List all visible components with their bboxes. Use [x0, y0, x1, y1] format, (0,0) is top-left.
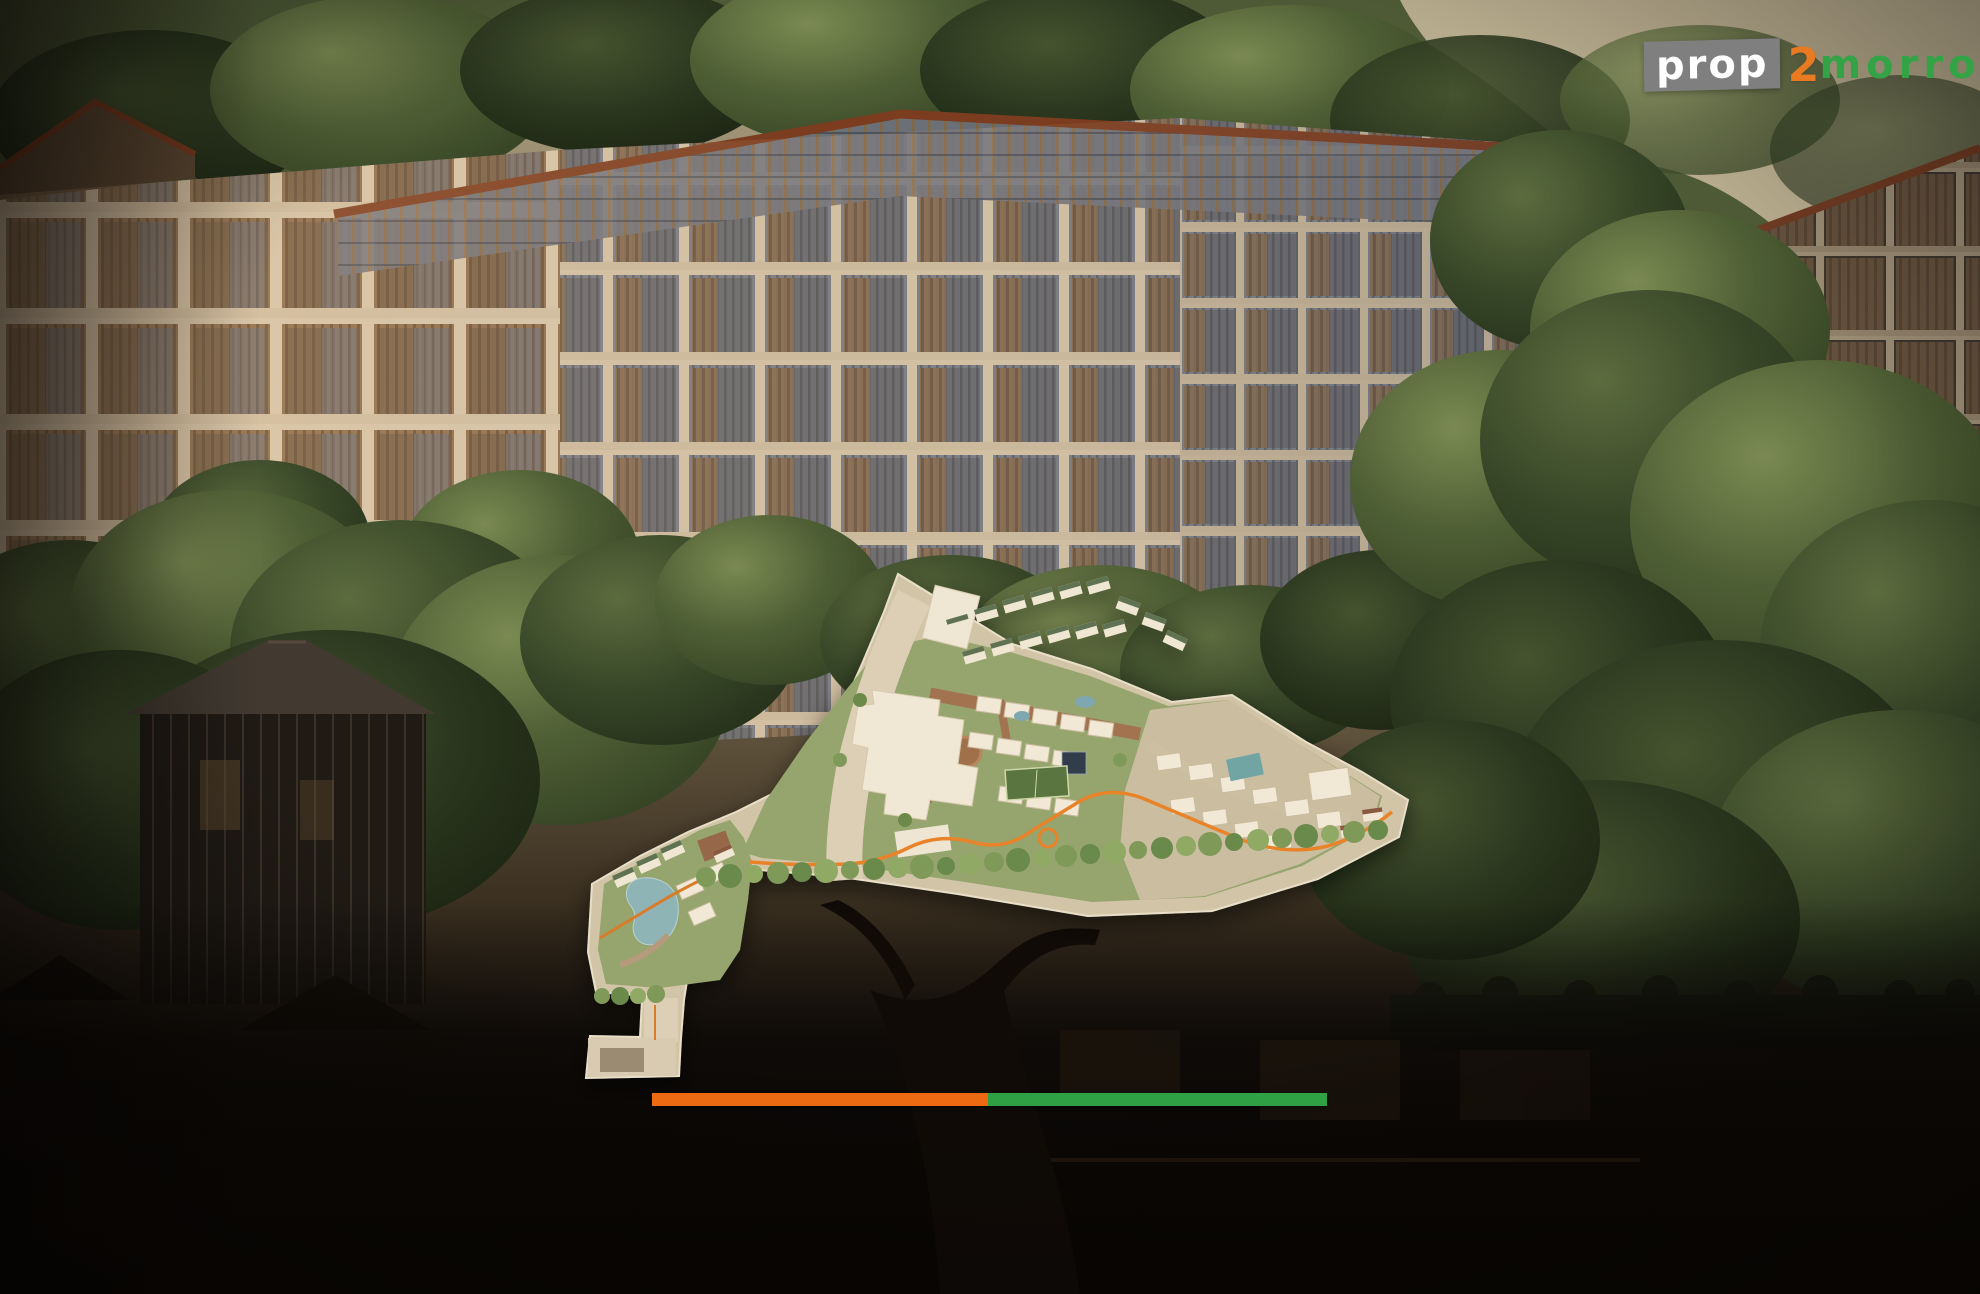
logo-prop-box: prop — [1644, 38, 1781, 92]
divider-green-segment — [988, 1093, 1327, 1106]
lagoon-pool — [626, 878, 678, 945]
logo-text-morrow: morrow — [1820, 45, 1980, 85]
hero-image: prop 2 morrow — [0, 0, 1980, 1294]
plan-villa-cluster-north — [946, 576, 1188, 665]
logo-text-2: 2 — [1787, 42, 1819, 88]
logo-text-prop: prop — [1656, 44, 1769, 87]
divider-orange-segment — [652, 1093, 988, 1106]
plan-sport-court — [1005, 766, 1069, 800]
brand-logo: prop 2 morrow — [1644, 40, 1980, 90]
accent-divider-bar — [652, 1093, 1327, 1106]
